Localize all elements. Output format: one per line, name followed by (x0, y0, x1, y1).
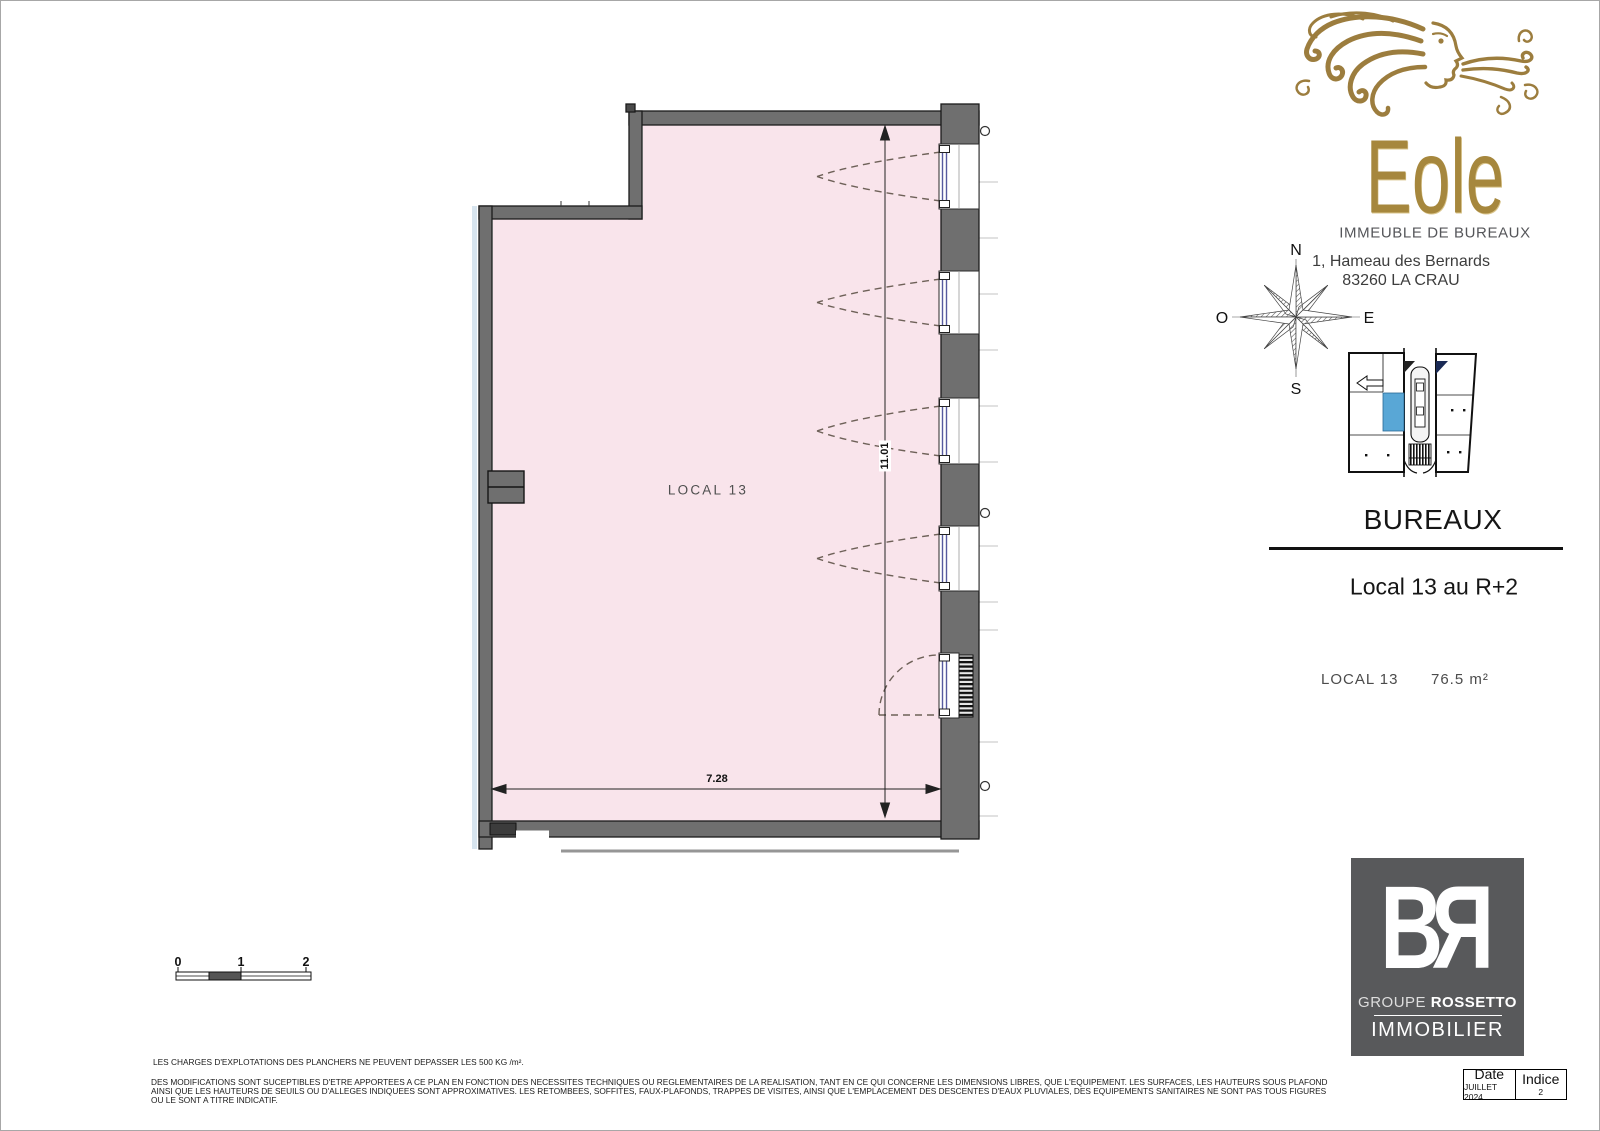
br-letter-r-mirrored: R (1432, 864, 1495, 992)
unit-name: LOCAL 13 (1321, 671, 1399, 688)
compass-south-label: S (1291, 381, 1302, 398)
scale-label-0: 0 (175, 955, 182, 969)
legal-charges-note: LES CHARGES D'EXPLOTATIONS DES PLANCHERS… (153, 1058, 524, 1067)
revision-date-label: Date (1474, 1067, 1504, 1082)
br-monogram: BR (1380, 864, 1494, 992)
br-divider (1374, 1015, 1502, 1016)
br-immobilier-label: IMMOBILIER (1371, 1019, 1504, 1042)
legal-modifications-line2: AINSI QUE LES HAUTEURS DE SEUILS OU D'AL… (151, 1087, 1326, 1096)
br-rossetto-label: ROSSETTO (1431, 994, 1517, 1011)
revision-indice-cell: Indice 2 (1516, 1070, 1567, 1099)
dimension-width-label: 7.28 (704, 773, 729, 785)
unit-title: Local 13 au R+2 (1350, 574, 1518, 601)
eole-eye (1438, 38, 1443, 43)
entrance-door (939, 653, 973, 718)
br-groupe-label: GROUPE (1358, 994, 1426, 1011)
dimension-height-label: 11.01 (879, 441, 891, 472)
scale-label-2: 2 (303, 955, 310, 969)
revision-indice-value: 2 (1538, 1087, 1543, 1097)
unit-area: 76.5 m² (1431, 671, 1489, 688)
left-facade-finish (472, 206, 477, 849)
brand-wordmark: Eole (1366, 125, 1505, 230)
building-locator-map (1347, 347, 1479, 478)
room-floor-area (493, 125, 941, 821)
room-label: LOCAL 13 (668, 483, 748, 498)
wall-stub (488, 471, 524, 503)
reference-circles (981, 127, 990, 791)
title-rule (1269, 547, 1563, 550)
facade-lines (979, 182, 998, 816)
revision-date-value: JUILLET 2024 (1464, 1082, 1515, 1102)
br-logo: BR GROUPE ROSSETTO IMMOBILIER (1351, 858, 1524, 1056)
compass-west-label: O (1216, 310, 1228, 327)
category-title: BUREAUX (1364, 504, 1503, 536)
br-groupe-line: GROUPE ROSSETTO (1358, 994, 1517, 1011)
wall-ticks (561, 201, 589, 206)
legal-modifications-line3: OU LE SONT A TITRE INDICATIF. (151, 1096, 278, 1105)
revision-table: Date JUILLET 2024 Indice 2 (1463, 1069, 1567, 1100)
scale-label-1: 1 (238, 955, 245, 969)
locator-highlight-local13 (1383, 393, 1404, 431)
compass-east-label: E (1364, 310, 1375, 327)
plan-sheet: LOCAL 13 11.01 7.28 0 1 2 Eole IMME (0, 0, 1600, 1131)
revision-date-cell: Date JUILLET 2024 (1464, 1070, 1516, 1099)
revision-indice-label: Indice (1522, 1072, 1559, 1087)
eole-face-logo (1273, 7, 1549, 133)
compass-north-label: N (1290, 242, 1302, 259)
